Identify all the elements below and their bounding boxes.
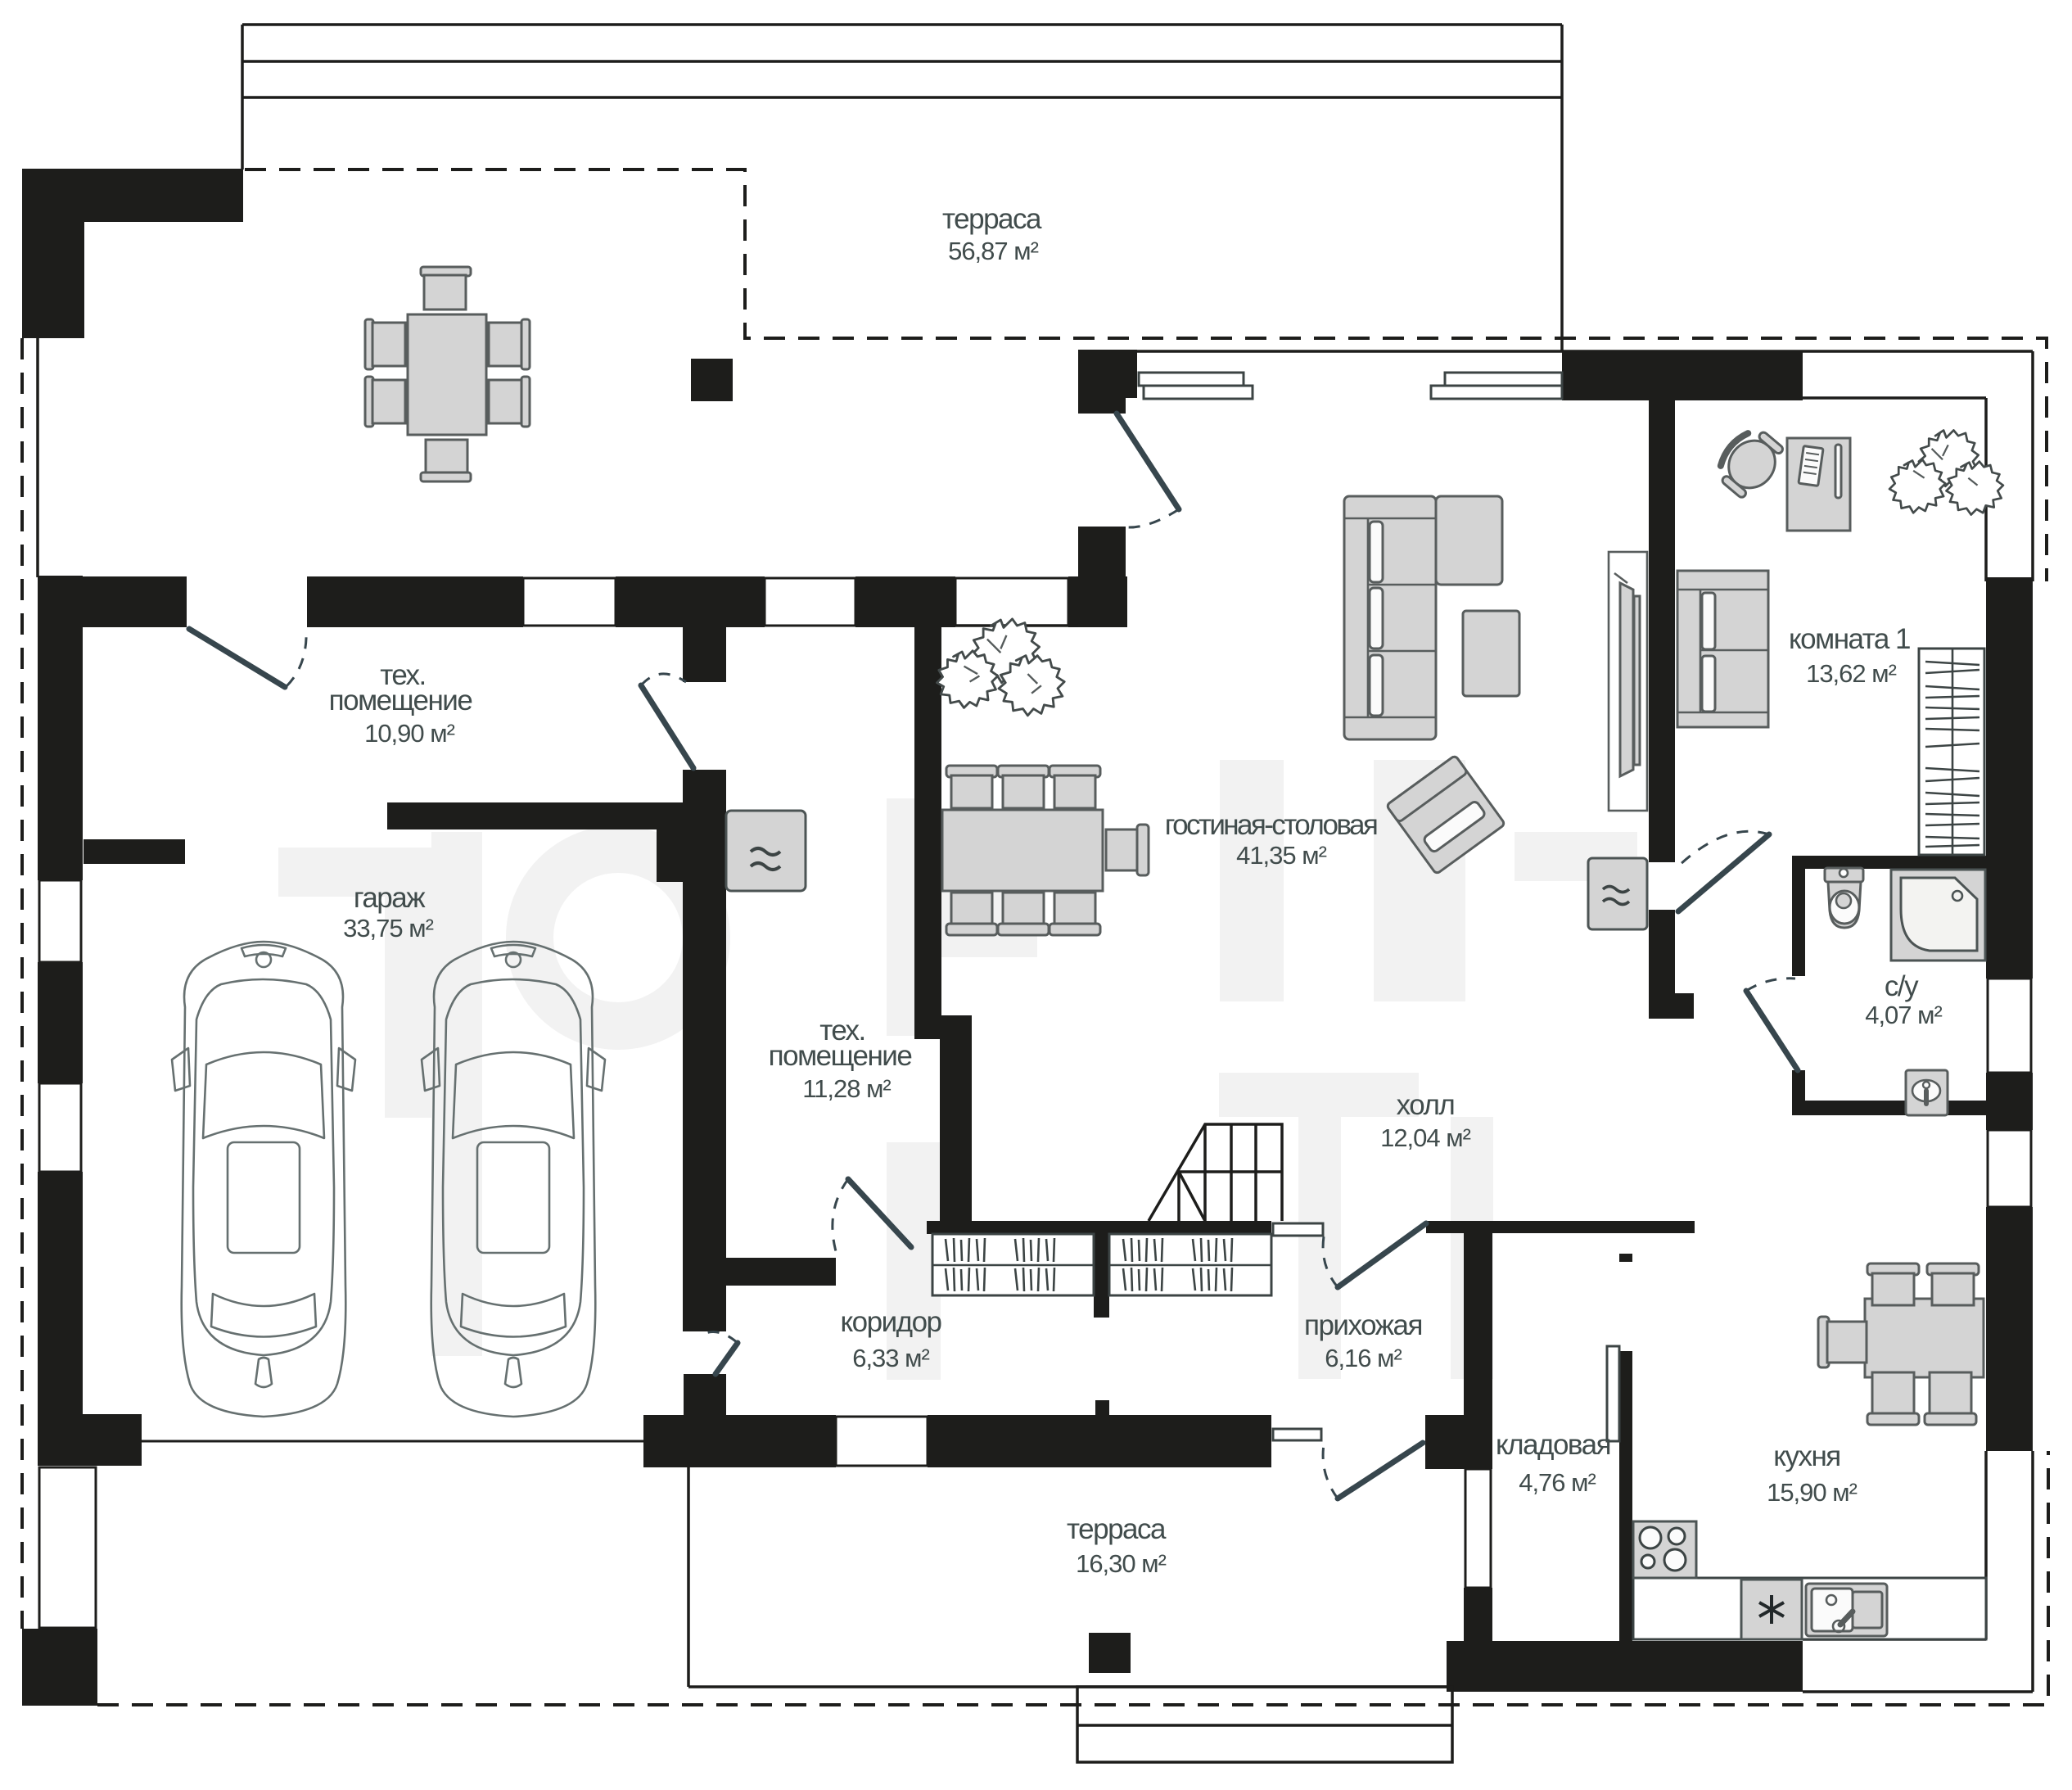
- svg-text:4,76 м²: 4,76 м²: [1519, 1468, 1596, 1497]
- svg-text:16,30 м²: 16,30 м²: [1076, 1549, 1167, 1578]
- svg-text:гараж: гараж: [354, 882, 426, 914]
- svg-text:комната 1: комната 1: [1789, 623, 1910, 655]
- svg-text:15,90 м²: 15,90 м²: [1767, 1478, 1858, 1507]
- svg-text:гостиная-столовая: гостиная-столовая: [1165, 809, 1377, 841]
- svg-text:коридор: коридор: [840, 1306, 941, 1338]
- svg-text:помещение: помещение: [329, 685, 472, 716]
- svg-text:терраса: терраса: [1067, 1513, 1167, 1545]
- svg-text:33,75 м²: 33,75 м²: [343, 914, 434, 942]
- svg-text:кладовая: кладовая: [1496, 1429, 1610, 1461]
- svg-text:56,87 м²: 56,87 м²: [948, 237, 1039, 265]
- svg-text:прихожая: прихожая: [1304, 1309, 1422, 1341]
- svg-text:6,33 м²: 6,33 м²: [852, 1344, 929, 1372]
- svg-text:помещение: помещение: [769, 1040, 912, 1072]
- svg-text:10,90 м²: 10,90 м²: [364, 719, 455, 748]
- svg-text:кухня: кухня: [1773, 1440, 1840, 1472]
- svg-text:12,04 м²: 12,04 м²: [1380, 1123, 1471, 1152]
- svg-text:с/у: с/у: [1885, 970, 1919, 1002]
- svg-text:11,28 м²: 11,28 м²: [802, 1074, 891, 1103]
- svg-text:6,16 м²: 6,16 м²: [1325, 1344, 1402, 1372]
- svg-text:13,62 м²: 13,62 м²: [1806, 659, 1897, 688]
- svg-text:холл: холл: [1397, 1089, 1455, 1121]
- svg-text:терраса: терраса: [942, 203, 1042, 235]
- svg-text:4,07 м²: 4,07 м²: [1865, 1001, 1942, 1029]
- svg-text:41,35 м²: 41,35 м²: [1236, 841, 1327, 870]
